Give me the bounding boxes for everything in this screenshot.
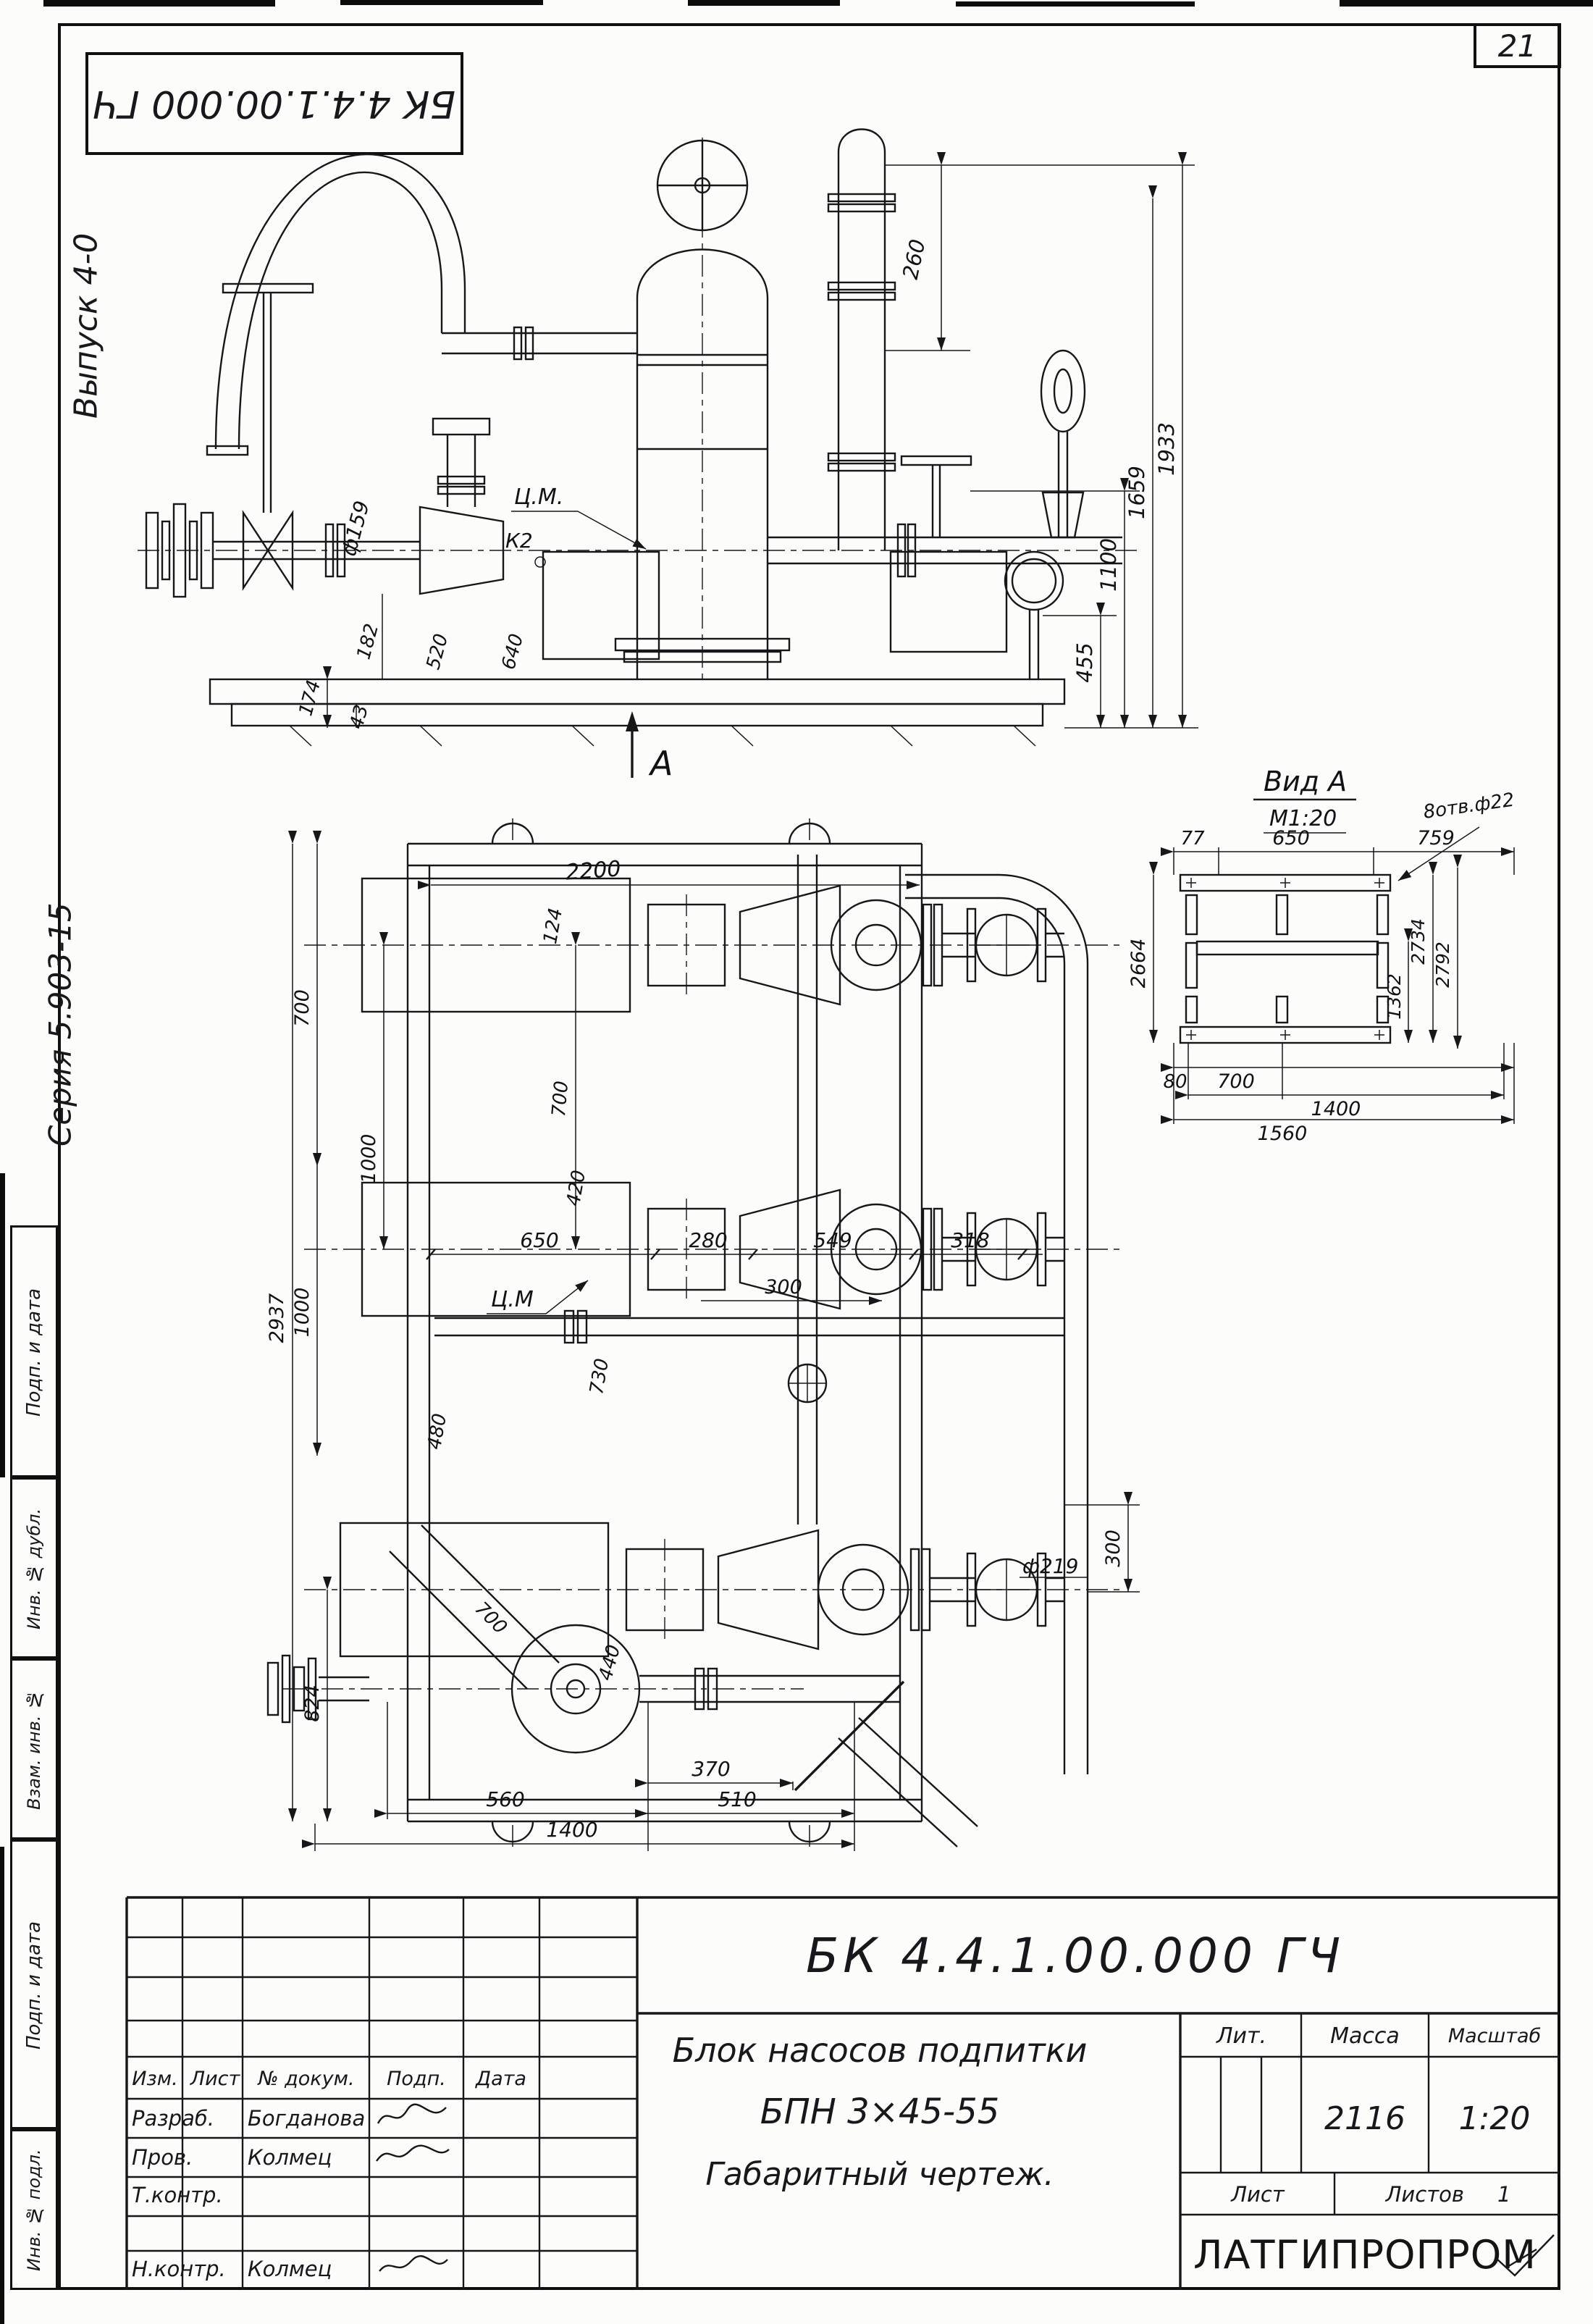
view-a-title: Вид А xyxy=(1264,765,1347,797)
doc-type: Габаритный чертеж. xyxy=(644,2148,1115,2200)
dim-2200: 2200 xyxy=(565,856,622,885)
dim-1933: 1933 xyxy=(1154,422,1179,476)
sig-name: Колмец xyxy=(248,2145,371,2170)
dim-700: 700 xyxy=(1217,1070,1255,1093)
sig-role: Н.контр. xyxy=(132,2257,248,2281)
dim-43: 43 xyxy=(346,702,374,731)
view-a-drawing: Вид А М1:20 8отв.ф22 77 650 xyxy=(1111,766,1568,1150)
margin-stamp-label: Инв. № дубл. xyxy=(12,1480,56,1658)
rev-col-podp: Подп. xyxy=(371,2060,462,2097)
dim-480: 480 xyxy=(424,1412,451,1451)
product-name-line1: Блок насосов подпитки xyxy=(644,2025,1115,2076)
approval-mark xyxy=(1493,2231,1558,2281)
dim-1100: 1100 xyxy=(1096,538,1121,592)
dim-300-v: 300 xyxy=(1102,1530,1125,1567)
sig-name: Богданова xyxy=(248,2106,371,2131)
dim-700-diag: 700 xyxy=(470,1598,510,1638)
margin-stamp-label: Взам. инв. № xyxy=(12,1661,56,1839)
dim-730: 730 xyxy=(586,1357,613,1396)
plan-view-linework xyxy=(268,818,1122,1847)
sig-role: Пров. xyxy=(132,2145,248,2170)
front-view-linework xyxy=(138,130,1137,747)
rev-col-izm: Изм. xyxy=(129,2060,181,2097)
mass-label: Масса xyxy=(1301,2018,1429,2054)
scan-artifact xyxy=(956,1,1195,7)
signature-scribble xyxy=(374,2100,453,2132)
dim-510: 510 xyxy=(718,1787,756,1811)
scan-artifact xyxy=(340,0,543,5)
organization: ЛАТГИПРОПРОМ xyxy=(1193,2232,1505,2283)
dim-549: 549 xyxy=(813,1228,852,1252)
view-a-holes-note: 8отв.ф22 xyxy=(1422,789,1516,823)
plan-view-drawing: 2200 124 700 420 700 2937 1000 1000 824 … xyxy=(253,811,1159,1868)
rev-col-docnum: № докум. xyxy=(245,2060,368,2097)
dim-420: 420 xyxy=(563,1169,590,1208)
sheets-label: Листов xyxy=(1386,2182,1464,2207)
dim-124: 124 xyxy=(539,907,567,946)
dim-1659: 1659 xyxy=(1125,466,1149,519)
margin-stamp-box: Подп. и дата xyxy=(10,1840,58,2129)
dim-1400: 1400 xyxy=(1311,1098,1361,1120)
dim-700-mid: 700 xyxy=(548,1080,573,1117)
callout-k2: К2 xyxy=(505,529,533,553)
scale-label: Масштаб xyxy=(1429,2018,1560,2054)
dim-370: 370 xyxy=(692,1757,730,1781)
callout-cm: Ц.М xyxy=(491,1287,534,1312)
sheet-label: Лист xyxy=(1182,2176,1334,2213)
dim-2664: 2664 xyxy=(1127,939,1150,989)
margin-stamp-box: Взам. инв. № xyxy=(10,1658,58,1840)
scan-artifact xyxy=(43,0,275,7)
margin-stamp-box: Подп. и дата xyxy=(10,1225,58,1477)
callout-cm: Ц.М. xyxy=(514,484,563,510)
dim-520: 520 xyxy=(422,632,453,672)
dim-1362: 1362 xyxy=(1384,973,1405,1020)
scale-value: 1:20 xyxy=(1429,2093,1560,2144)
dim-700-left: 700 xyxy=(291,989,314,1027)
dim-824: 824 xyxy=(301,1685,324,1722)
dim-80: 80 xyxy=(1163,1071,1187,1093)
dim-640: 640 xyxy=(497,632,528,672)
page-number: 21 xyxy=(1498,28,1537,64)
dim-1000-a: 1000 xyxy=(291,1288,314,1338)
product-name-line2: БПН 3×45-55 xyxy=(644,2084,1115,2139)
dim-182: 182 xyxy=(353,621,383,662)
dim-1560: 1560 xyxy=(1258,1123,1308,1145)
margin-issue-label: Выпуск 4-0 xyxy=(64,196,109,456)
dim-77: 77 xyxy=(1180,828,1205,850)
view-a-header: Вид А М1:20 8отв.ф22 xyxy=(1253,765,1516,881)
front-view-drawing: 260 455 1100 1659 1933 174 43 182 520 64… xyxy=(109,43,1231,797)
sheets-value: 1 xyxy=(1497,2182,1510,2207)
margin-stamp-label: Инв. № подл. xyxy=(12,2131,56,2289)
scan-artifact xyxy=(1340,0,1593,7)
lit-label: Лит. xyxy=(1182,2018,1301,2054)
dim-2792: 2792 xyxy=(1432,941,1453,988)
rev-col-list: Лист xyxy=(185,2060,245,2097)
sig-role: Т.контр. xyxy=(132,2183,277,2207)
dim-650: 650 xyxy=(520,1228,558,1252)
dim-650: 650 xyxy=(1272,827,1310,850)
signature-scribble xyxy=(374,2251,453,2283)
page-number-box: 21 xyxy=(1474,23,1561,68)
dim-2734: 2734 xyxy=(1408,918,1429,965)
margin-stamp-label: Подп. и дата xyxy=(12,1842,56,2128)
sig-name: Колмец xyxy=(248,2257,371,2281)
scan-artifact xyxy=(688,0,840,6)
section-label: А xyxy=(648,744,673,783)
margin-stamp-label: Подп. и дата xyxy=(12,1228,56,1477)
dim-280: 280 xyxy=(689,1228,727,1252)
dim-560: 560 xyxy=(486,1787,524,1811)
scan-artifact xyxy=(0,1173,5,1477)
dim-260: 260 xyxy=(898,237,930,281)
view-a-linework xyxy=(1180,875,1390,1043)
mass-value: 2116 xyxy=(1301,2093,1429,2144)
front-view-dimensions: 260 455 1100 1659 1933 174 43 182 520 64… xyxy=(295,165,1198,783)
doc-number: БК 4.4.1.00.000 ГЧ xyxy=(652,1912,1499,1999)
dim-300-h: 300 xyxy=(765,1276,802,1299)
plan-view-dimensions: 2200 124 700 420 700 2937 1000 1000 824 … xyxy=(266,844,1140,1851)
margin-series-label: Серия 5.903-15 xyxy=(38,855,83,1195)
callout-dia219: ф219 xyxy=(1022,1554,1078,1578)
signature-scribble xyxy=(374,2139,453,2171)
dim-318: 318 xyxy=(951,1228,989,1252)
dim-440: 440 xyxy=(594,1643,625,1683)
dim-759: 759 xyxy=(1417,827,1455,850)
dim-174: 174 xyxy=(295,678,325,718)
callout-dia159: ф159 xyxy=(337,498,374,558)
sheets-cell: Листов 1 xyxy=(1336,2176,1560,2213)
dim-455: 455 xyxy=(1072,642,1097,682)
dim-1000-b: 1000 xyxy=(358,1134,380,1184)
rev-col-data: Дата xyxy=(465,2060,537,2097)
margin-stamp-box: Инв. № подл. xyxy=(10,2129,58,2290)
sig-role: Разраб. xyxy=(132,2106,248,2131)
dim-2937: 2937 xyxy=(266,1293,288,1343)
dim-1400: 1400 xyxy=(546,1818,597,1842)
scan-artifact xyxy=(0,1847,4,2324)
margin-stamp-box: Инв. № дубл. xyxy=(10,1477,58,1658)
drawing-sheet: 21 БК 4.4.1.00.000 ГЧ Выпуск 4-0 Серия 5… xyxy=(0,0,1593,2324)
